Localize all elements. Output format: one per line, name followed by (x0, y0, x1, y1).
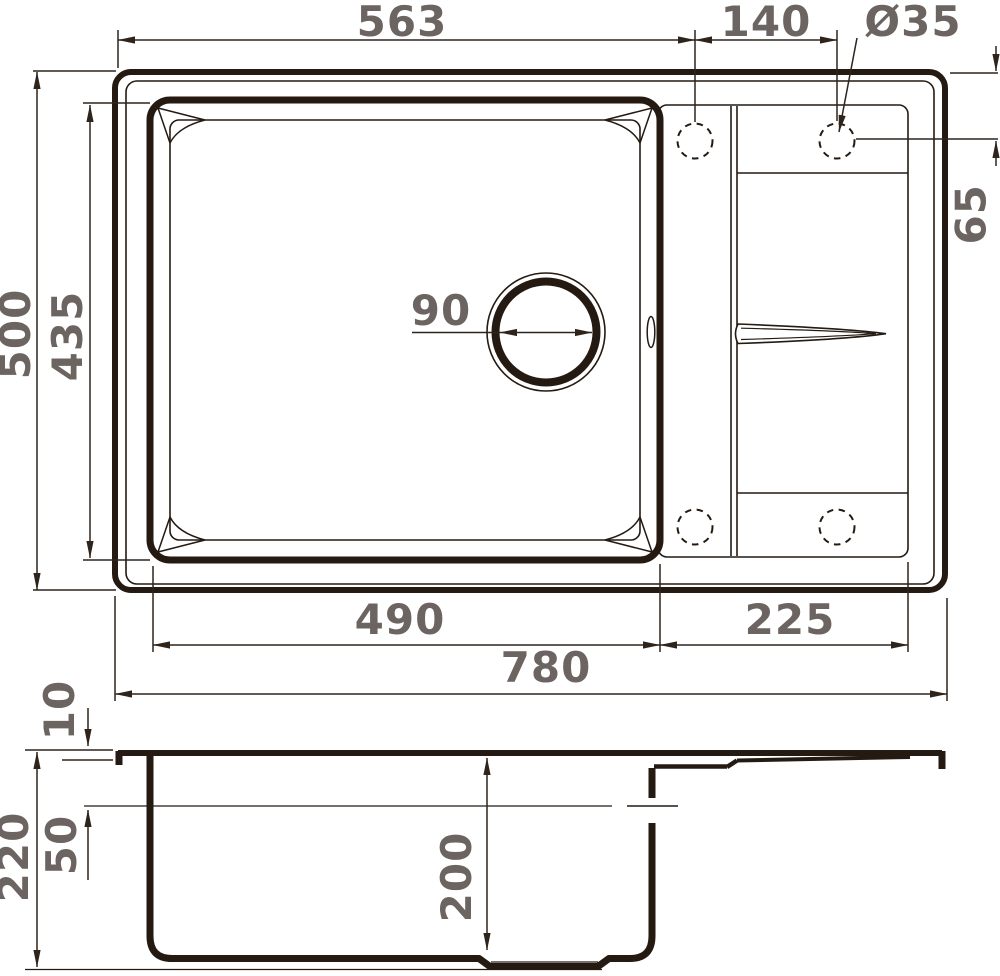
dim-label-overall-height: 220 (0, 812, 38, 903)
bowl-corner-chamfer-bottom-right (605, 517, 652, 552)
section-bowl-profile (150, 753, 652, 967)
dim-label-hole-diameter: Ø35 (864, 0, 961, 46)
dim-label-overall-depth: 500 (0, 289, 40, 380)
dim-label-ledge-depth: 50 (37, 815, 86, 875)
dim-label-bowl-width: 490 (355, 595, 446, 644)
section-drainboard-surface (737, 757, 910, 761)
dim-label-hole-spacing: 140 (721, 0, 812, 46)
dim-label-bowl-depth: 435 (43, 291, 92, 382)
faucet-hole-top-left (678, 124, 713, 159)
ext-lines-hole-offset (856, 73, 998, 139)
leader-line-hole-diameter (839, 38, 857, 132)
bowl-corner-chamfer-top-left (158, 108, 205, 143)
sink-technical-drawing: 563 140 Ø35 65 500 435 90 490 225 780 (0, 0, 1000, 976)
dim-label-bowl-inner-depth: 200 (432, 832, 481, 923)
bowl-corner-chamfer-top-right (605, 108, 652, 143)
dim-label-drain-diameter: 90 (411, 286, 471, 335)
bowl-floor-edge (170, 120, 640, 540)
drainboard-groove-outer (736, 324, 887, 344)
section-ledge (654, 761, 737, 768)
faucet-hole-top-right (820, 124, 855, 159)
dim-label-rim-thickness: 10 (35, 680, 84, 740)
faucet-hole-bottom-left (678, 510, 713, 545)
top-view (115, 72, 945, 590)
bowl-corner-chamfer-bottom-left (158, 517, 205, 552)
section-view-dimensions: 10 50 220 200 (0, 680, 487, 967)
dim-label-drainboard-width: 225 (745, 595, 836, 644)
faucet-hole-bottom-right (820, 510, 855, 545)
overflow-notch (647, 317, 655, 348)
section-view (25, 751, 942, 970)
dim-label-overall-width: 780 (501, 643, 592, 692)
dim-label-hole-offset: 65 (947, 184, 996, 244)
dim-label-left-to-hole: 563 (357, 0, 448, 46)
drawing-canvas: 563 140 Ø35 65 500 435 90 490 225 780 (0, 0, 1000, 976)
section-ext-lines (25, 750, 113, 760)
bowl-outer-edge (150, 100, 660, 560)
